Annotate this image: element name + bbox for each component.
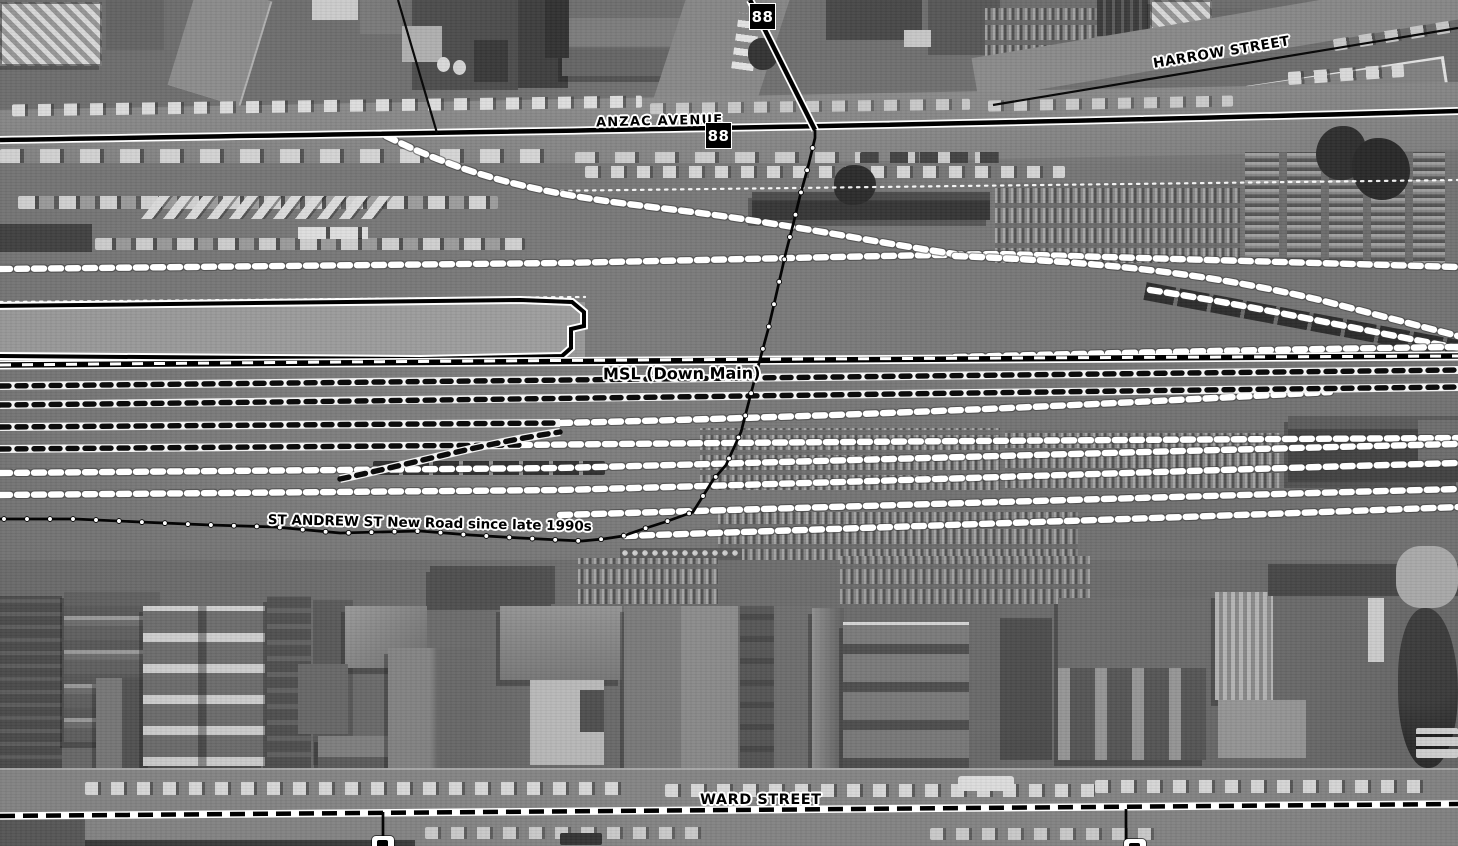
route-shield-88-top: 88 — [749, 3, 776, 30]
aerial-map-canvas[interactable]: ANZAC AVENUE HARROW STREET MSL (Down Mai… — [0, 0, 1458, 846]
side-street-line — [398, 0, 437, 133]
route-shield-partial-right — [1124, 839, 1146, 846]
road-label-ward-street: WARD STREET — [700, 792, 822, 808]
platform-outline — [0, 300, 584, 359]
route-shield-partial-left — [372, 836, 394, 846]
harrow-street-line — [993, 28, 1458, 105]
track-label-msl-down-main: MSL (Down Main) — [603, 364, 761, 384]
route-shield-88-anzac: 88 — [705, 122, 732, 149]
